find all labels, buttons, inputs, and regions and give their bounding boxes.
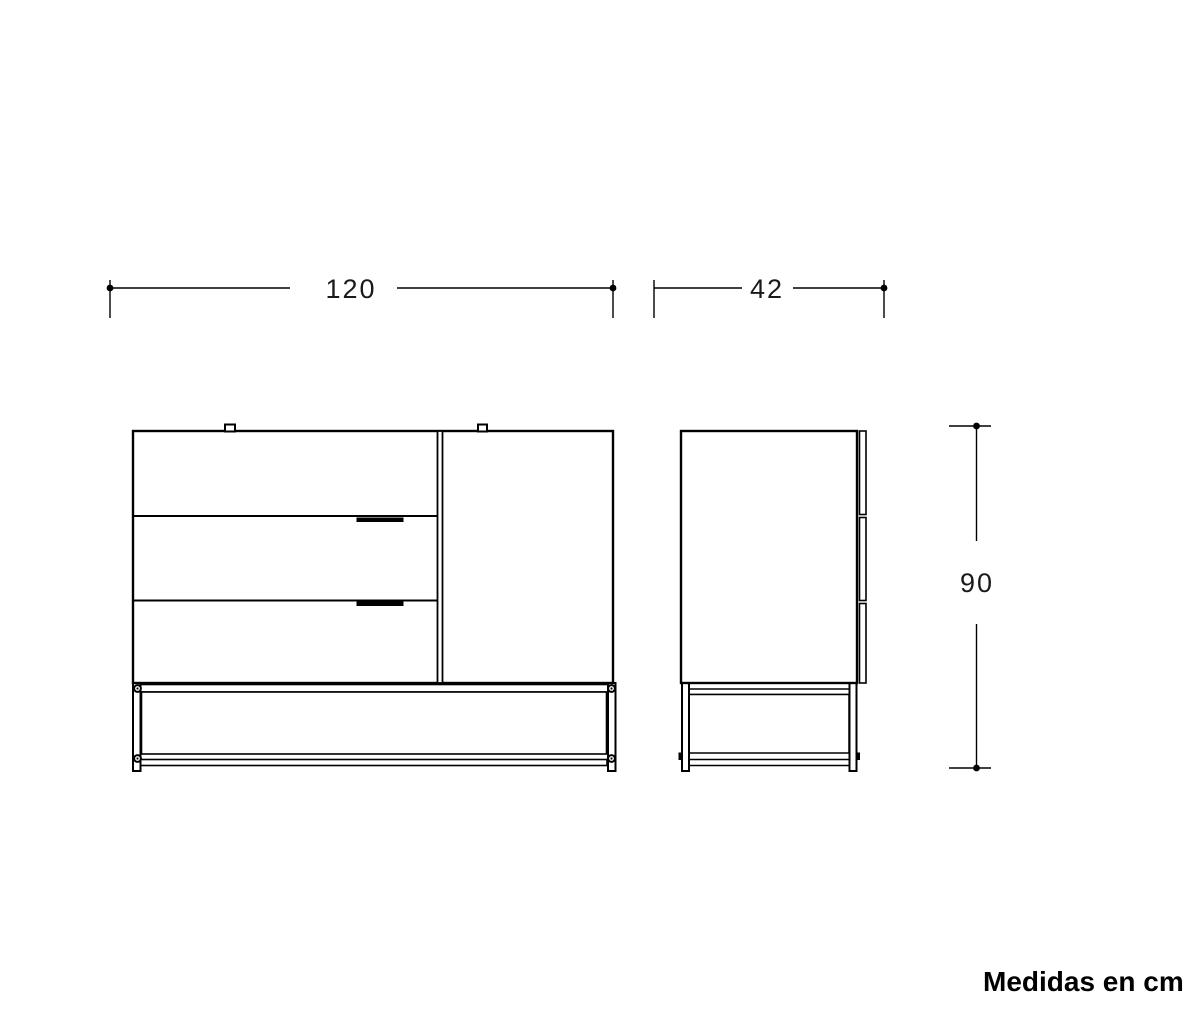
endpoint-dot-right xyxy=(610,285,617,292)
base-bottom-stretcher xyxy=(140,760,607,766)
base-leg-front xyxy=(850,683,857,771)
dimension-depth: 42 xyxy=(654,274,887,318)
side-view xyxy=(679,431,867,771)
bolt-head-front xyxy=(856,753,860,761)
bolt-head-back xyxy=(679,753,683,761)
bolt-center xyxy=(610,687,612,689)
endpoint-dot-bottom xyxy=(973,765,980,772)
units-note: Medidas en cm xyxy=(983,966,1184,997)
base-bottom-stretcher xyxy=(682,760,856,766)
base-top-rail xyxy=(682,689,856,695)
bolt-center xyxy=(136,757,138,759)
bolt-center xyxy=(610,757,612,759)
drawer-front-edge-3 xyxy=(860,604,867,684)
base-opening xyxy=(689,695,849,754)
base-leg-back xyxy=(682,683,689,771)
dimension-height: 90 xyxy=(949,423,994,772)
drawer-handle-2 xyxy=(357,602,404,607)
drawer-handle-1 xyxy=(357,518,404,523)
side-panel-outline xyxy=(681,431,857,683)
cabinet-outline xyxy=(133,431,613,683)
depth-dimension-label: 42 xyxy=(750,274,784,304)
endpoint-dot-left xyxy=(107,285,114,292)
width-dimension-label: 120 xyxy=(325,274,376,304)
technical-drawing-canvas: 120 42 90 xyxy=(0,0,1200,1028)
bolt-center xyxy=(136,687,138,689)
height-dimension-label: 90 xyxy=(960,568,994,598)
furniture-dimension-drawing: 120 42 90 xyxy=(0,0,1200,1028)
top-connector-tab-1 xyxy=(225,425,235,432)
endpoint-dot-right xyxy=(881,285,888,292)
base-top-rail xyxy=(134,685,615,693)
base-opening xyxy=(142,692,607,754)
endpoint-dot-top xyxy=(973,423,980,430)
top-connector-tab-2 xyxy=(478,425,487,432)
dimension-width: 120 xyxy=(107,274,617,318)
front-view xyxy=(133,425,616,772)
drawer-front-edge-2 xyxy=(860,518,867,601)
center-divider-panel xyxy=(438,431,443,683)
drawer-front-edge-1 xyxy=(860,431,867,515)
